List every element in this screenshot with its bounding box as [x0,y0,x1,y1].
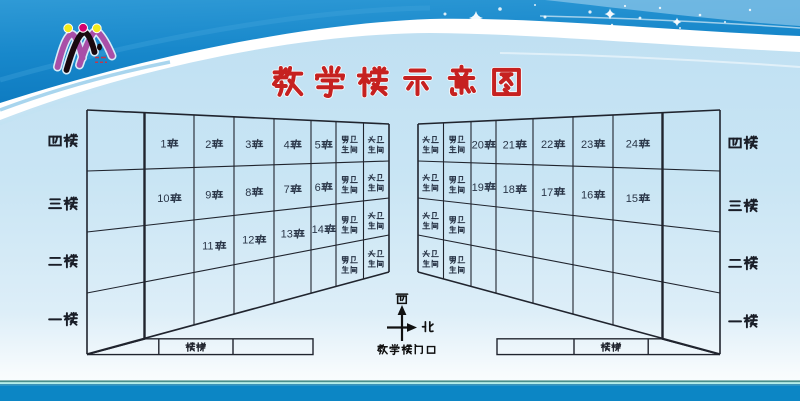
svg-text:20: 20 [472,140,484,152]
svg-text:9: 9 [205,190,211,202]
svg-text:8: 8 [245,187,251,199]
svg-text:19: 19 [472,182,484,194]
svg-text:7: 7 [284,184,290,196]
svg-text:10: 10 [157,193,169,205]
svg-text:6: 6 [315,182,321,194]
svg-text:14: 14 [312,224,324,236]
svg-text:16: 16 [581,190,593,202]
svg-text:5: 5 [315,140,321,152]
svg-text:2: 2 [205,139,211,151]
svg-text:12: 12 [242,235,254,247]
svg-text:17: 17 [541,187,553,199]
svg-text:21: 21 [503,139,515,151]
svg-text:23: 23 [581,139,593,151]
svg-text:1: 1 [160,139,166,151]
svg-text:15: 15 [626,193,638,205]
svg-text:22: 22 [541,139,553,151]
svg-text:3: 3 [245,139,251,151]
svg-text:24: 24 [626,139,638,151]
svg-text:13: 13 [281,229,293,241]
svg-text:18: 18 [503,184,515,196]
svg-text:4: 4 [284,139,290,151]
svg-text:11: 11 [202,241,213,253]
